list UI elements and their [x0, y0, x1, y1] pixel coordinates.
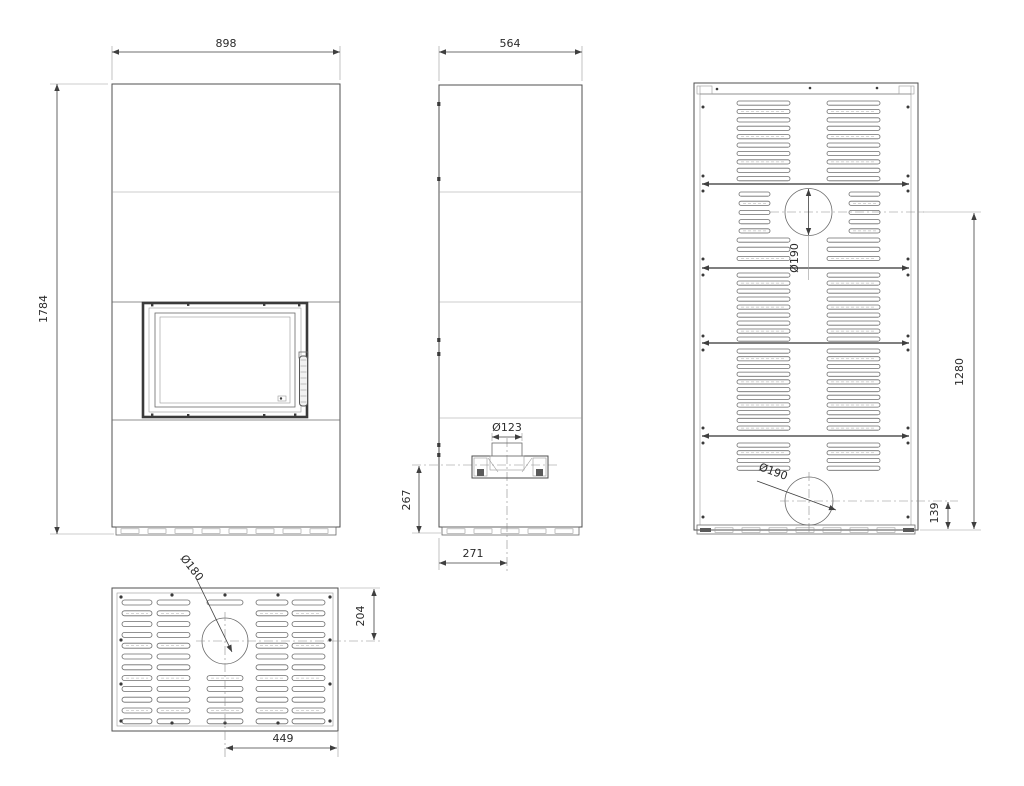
vent-slot	[739, 220, 770, 224]
vent-slot	[737, 321, 790, 325]
screw-dot	[702, 106, 705, 109]
vent-slot	[827, 395, 880, 399]
plinth-segment	[528, 529, 546, 534]
vent-slot	[827, 101, 880, 105]
vent-slot	[737, 126, 790, 130]
vent-slot	[827, 372, 880, 376]
vent-slot	[737, 443, 790, 447]
vent-slot	[827, 364, 880, 368]
screw-dot	[907, 442, 910, 445]
vent-slot	[292, 622, 325, 627]
side-view: 564 Ø123 267 271	[400, 37, 582, 572]
vent-slot	[827, 349, 880, 353]
back-screw-dots	[702, 106, 910, 519]
vent-slot	[827, 168, 880, 172]
screw-dot	[276, 593, 279, 596]
vent-slot	[256, 686, 288, 691]
vent-slot	[122, 719, 152, 724]
vent-slot	[737, 372, 790, 376]
screw-dot	[276, 721, 279, 724]
vent-slot	[122, 622, 152, 627]
vent-slot	[737, 168, 790, 172]
door-screw	[263, 304, 265, 306]
screw-dot	[702, 442, 705, 445]
vent-slot	[157, 632, 190, 637]
brand-logo-dot	[280, 397, 282, 399]
door-screw	[151, 304, 153, 306]
bottom-outlet-leader	[757, 481, 836, 510]
dim-label-top-outlet: Ø190	[788, 243, 801, 273]
door-screw	[294, 414, 296, 416]
vent-slot	[256, 697, 288, 702]
vent-slot	[122, 686, 152, 691]
fireplace-technical-drawing: 898 1784 564 Ø123	[0, 0, 1024, 786]
vent-slot	[849, 220, 880, 224]
vent-slot	[256, 600, 288, 605]
screw-dot	[119, 638, 122, 641]
screw-dot	[702, 427, 705, 430]
vent-slot	[737, 273, 790, 277]
screw-dot	[702, 335, 705, 338]
plinth-segment	[256, 529, 274, 534]
vent-slot	[122, 600, 152, 605]
hinge-mark	[437, 338, 440, 342]
dim-label-bottom-outlet: Ø190	[757, 461, 789, 483]
screw-dot	[119, 595, 122, 598]
plinth-segment	[555, 529, 573, 534]
vent-slot	[122, 665, 152, 670]
vent-slot	[737, 118, 790, 122]
screw-dot	[702, 258, 705, 261]
vent-slot	[122, 632, 152, 637]
vent-slot	[737, 238, 790, 242]
plinth-segment	[121, 529, 139, 534]
dim-label-outlet-span: 1280	[953, 358, 966, 386]
screw-dot	[809, 87, 812, 90]
vent-slot	[737, 364, 790, 368]
screw-dot	[907, 516, 910, 519]
vent-slot	[157, 665, 190, 670]
vent-slot	[737, 247, 790, 251]
drawing-sheet: 898 1784 564 Ø123	[0, 0, 1024, 786]
vent-slot	[849, 210, 880, 214]
front-view: 898 1784	[37, 37, 340, 535]
vent-slot	[737, 395, 790, 399]
vent-slot	[737, 313, 790, 317]
vent-slot	[157, 600, 190, 605]
dim-label-outlet-side-offset: 449	[273, 732, 294, 745]
vent-slot	[827, 126, 880, 130]
door-outer-frame	[143, 303, 307, 417]
dim-label-front-height: 1784	[37, 295, 50, 323]
screw-dot	[170, 593, 173, 596]
screw-dot	[907, 335, 910, 338]
back-plinth-end-left	[700, 528, 711, 532]
door-screw	[298, 304, 300, 306]
vent-slot	[292, 686, 325, 691]
vent-slot	[827, 177, 880, 181]
screw-dot	[119, 682, 122, 685]
hinge-mark	[437, 443, 440, 447]
vent-slot	[157, 686, 190, 691]
dim-label-front-width: 898	[216, 37, 237, 50]
screw-dot	[702, 349, 705, 352]
dim-label-side-width: 564	[500, 37, 521, 50]
vent-slot	[292, 600, 325, 605]
side-body-outline	[439, 85, 582, 527]
back-corner-bracket-right	[899, 86, 914, 94]
door-screw	[151, 414, 153, 416]
vent-slot	[737, 289, 790, 293]
plinth-segment	[148, 529, 166, 534]
vent-slot	[827, 289, 880, 293]
vent-slot	[292, 665, 325, 670]
vent-slot	[827, 143, 880, 147]
screw-dot	[716, 88, 719, 91]
vent-slot	[827, 458, 880, 462]
vent-slot	[827, 388, 880, 392]
back-plinth-end-right	[903, 528, 914, 532]
screw-dot	[328, 682, 331, 685]
vent-slot	[737, 177, 790, 181]
vent-slot	[292, 719, 325, 724]
vent-slot	[827, 297, 880, 301]
vent-slot	[157, 622, 190, 627]
door-screw	[187, 304, 189, 306]
vent-slot	[827, 273, 880, 277]
vent-slot	[157, 697, 190, 702]
vent-slot	[827, 247, 880, 251]
vent-slot	[827, 337, 880, 341]
vent-slot	[737, 349, 790, 353]
screw-dot	[907, 274, 910, 277]
door-glass	[160, 317, 290, 403]
dim-label-bottom-outlet-height: 139	[928, 503, 941, 524]
back-view: Ø190 Ø190 1280 139	[694, 83, 981, 534]
screw-dot	[907, 175, 910, 178]
vent-slot	[737, 143, 790, 147]
vent-slot	[737, 101, 790, 105]
vent-slot	[256, 632, 288, 637]
dim-label-outlet-front-offset: 204	[354, 606, 367, 627]
screw-dot	[907, 349, 910, 352]
screw-dot	[907, 106, 910, 109]
door-screw	[263, 414, 265, 416]
plinth-segment	[310, 529, 328, 534]
vent-slot	[157, 654, 190, 659]
screw-dot	[223, 593, 226, 596]
vent-slot	[827, 118, 880, 122]
back-vent-slots	[737, 101, 880, 470]
plinth-segment	[229, 529, 247, 534]
intake-diagonal-right	[522, 458, 532, 472]
side-plinth	[442, 527, 579, 535]
vent-slot	[827, 411, 880, 415]
vent-slot	[737, 151, 790, 155]
vent-slot	[827, 321, 880, 325]
front-plinth	[116, 527, 336, 535]
vent-slot	[737, 337, 790, 341]
door-handle	[300, 356, 308, 406]
vent-slot	[292, 654, 325, 659]
vent-slot	[849, 192, 880, 196]
plinth-segment	[474, 529, 492, 534]
back-body-outline	[694, 83, 918, 530]
hinge-mark	[437, 177, 440, 181]
screw-dot	[702, 175, 705, 178]
intake-foot-left	[477, 469, 484, 476]
top-view: Ø180 204 449	[112, 552, 380, 757]
vent-slot	[207, 600, 243, 605]
back-corner-bracket-left	[697, 86, 712, 94]
dim-label-intake-diameter: Ø123	[492, 421, 522, 434]
hinge-mark	[437, 102, 440, 106]
intake-foot-right	[536, 469, 543, 476]
vent-slot	[739, 210, 770, 214]
screw-dot	[328, 595, 331, 598]
top-vent-slots	[122, 600, 325, 724]
dim-label-intake-offset: 271	[463, 547, 484, 560]
vent-slot	[737, 297, 790, 301]
screw-dot	[119, 719, 122, 722]
screw-dot	[876, 87, 879, 90]
side-plinth-segments	[447, 529, 573, 534]
vent-slot	[827, 443, 880, 447]
door-screw	[187, 414, 189, 416]
plinth-segment	[175, 529, 193, 534]
vent-slot	[739, 192, 770, 196]
vent-slot	[256, 622, 288, 627]
vent-slot	[256, 654, 288, 659]
plinth-segment	[202, 529, 220, 534]
plinth-segment	[283, 529, 301, 534]
screw-dot	[328, 719, 331, 722]
screw-dot	[907, 427, 910, 430]
dim-label-intake-height: 267	[400, 490, 413, 511]
front-plinth-segments	[121, 529, 328, 534]
vent-slot	[292, 632, 325, 637]
vent-slot	[292, 697, 325, 702]
door-inner-frame	[155, 313, 295, 407]
vent-slot	[256, 719, 288, 724]
plinth-segment	[501, 529, 519, 534]
screw-dot	[907, 190, 910, 193]
vent-slot	[737, 418, 790, 422]
screw-dot	[702, 516, 705, 519]
vent-slot	[827, 151, 880, 155]
hinge-mark	[437, 352, 440, 356]
dim-label-top-view-outlet: Ø180	[178, 552, 207, 583]
vent-slot	[122, 654, 152, 659]
vent-slot	[122, 697, 152, 702]
vent-slot	[827, 238, 880, 242]
plinth-segment	[447, 529, 465, 534]
vent-slot	[737, 388, 790, 392]
vent-slot	[827, 466, 880, 470]
hinge-mark	[437, 453, 440, 457]
screw-dot	[170, 721, 173, 724]
screw-dot	[702, 274, 705, 277]
screw-dot	[907, 258, 910, 261]
vent-slot	[256, 665, 288, 670]
vent-slot	[827, 313, 880, 317]
vent-slot	[827, 418, 880, 422]
screw-dot	[702, 190, 705, 193]
vent-slot	[737, 411, 790, 415]
